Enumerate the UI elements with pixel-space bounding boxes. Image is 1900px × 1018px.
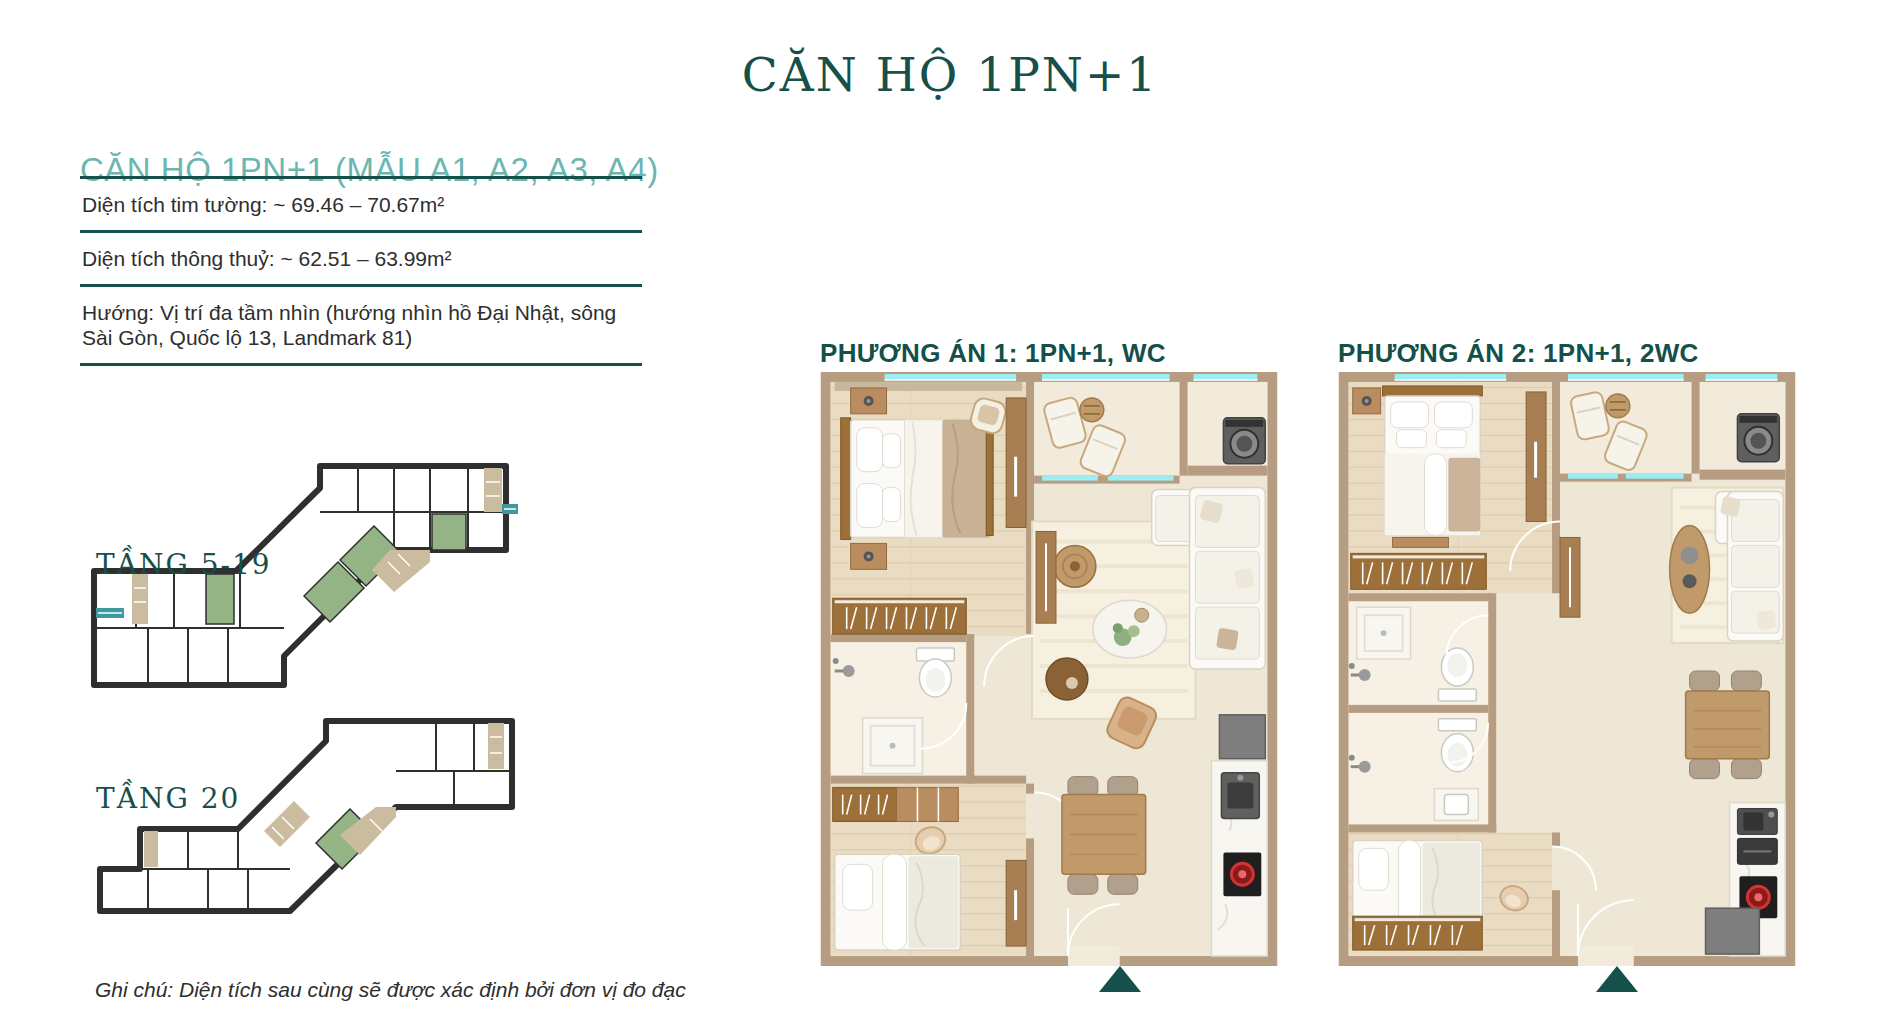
window-glass <box>1042 374 1170 380</box>
elevator-core <box>484 468 502 512</box>
single-bed <box>835 854 961 950</box>
shower <box>863 718 923 774</box>
highlighted-unit <box>432 514 466 550</box>
nightstand <box>1353 388 1381 414</box>
side-table <box>1606 394 1630 418</box>
window-glass <box>1194 374 1258 380</box>
footnote: Ghi chú: Diện tích sau cùng sẽ được xác … <box>95 978 795 1002</box>
double-bed <box>1383 386 1483 547</box>
toilet <box>1438 648 1476 701</box>
side-table <box>1080 398 1104 422</box>
wardrobe <box>833 788 897 822</box>
entrance-opening <box>1068 946 1120 966</box>
coffee-table <box>1670 525 1710 613</box>
double-bed <box>841 418 993 540</box>
floor-label-5-19: TẦNG 5-19 <box>96 548 272 581</box>
plan2-label: PHƯƠNG ÁN 2: 1PN+1, 2WC <box>1338 338 1699 369</box>
bathroom-sink <box>1434 789 1478 821</box>
window-glass <box>1395 374 1507 380</box>
keyplan-floor-20 <box>88 715 528 930</box>
toilet <box>916 648 954 697</box>
induction-hob <box>1223 852 1261 896</box>
wardrobe <box>833 598 967 634</box>
spec-row-gross-area: Diện tích tim tường: ~ 69.46 – 70.67m² <box>80 176 642 230</box>
kitchen-sink <box>1221 773 1259 819</box>
floorplan-option-2 <box>1338 372 1796 966</box>
elevator-core <box>488 723 504 769</box>
window-glass <box>885 374 1017 380</box>
nightstand <box>851 388 887 414</box>
coffee-table-marble <box>1093 600 1167 658</box>
floorplan-option-1 <box>820 372 1278 966</box>
shower <box>1357 607 1411 659</box>
page-title: CĂN HỘ 1PN+1 <box>0 47 1900 102</box>
wardrobe <box>1351 553 1487 589</box>
spec-table: Diện tích tim tường: ~ 69.46 – 70.67m² D… <box>80 176 642 366</box>
entrance-arrow <box>1596 966 1638 992</box>
kitchen-sink <box>1737 809 1777 835</box>
washing-machine <box>1223 418 1265 464</box>
highlighted-unit <box>206 574 234 624</box>
spec-row-orientation: Hướng: Vị trí đa tầm nhìn (hướng nhìn hồ… <box>80 284 642 363</box>
nightstand <box>851 543 887 569</box>
floor-label-20: TẦNG 20 <box>96 782 240 815</box>
side-table-dark <box>1046 658 1088 700</box>
toilet <box>1438 719 1476 772</box>
entrance-opening <box>1578 946 1634 966</box>
entrance-arrow <box>1099 966 1141 992</box>
plan1-label: PHƯƠNG ÁN 1: 1PN+1, WC <box>820 338 1166 369</box>
spec-row-net-area: Diện tích thông thuỷ: ~ 62.51 – 63.99m² <box>80 230 642 284</box>
fridge <box>1219 715 1265 759</box>
window-glass <box>1568 374 1684 380</box>
service-core <box>132 574 148 624</box>
cabinet <box>897 788 959 822</box>
washing-machine <box>1737 414 1779 462</box>
coffee-table <box>1054 545 1096 587</box>
wardrobe <box>1353 916 1483 950</box>
fridge <box>1706 908 1760 954</box>
service-core <box>144 831 158 867</box>
window-glass <box>1706 374 1778 380</box>
